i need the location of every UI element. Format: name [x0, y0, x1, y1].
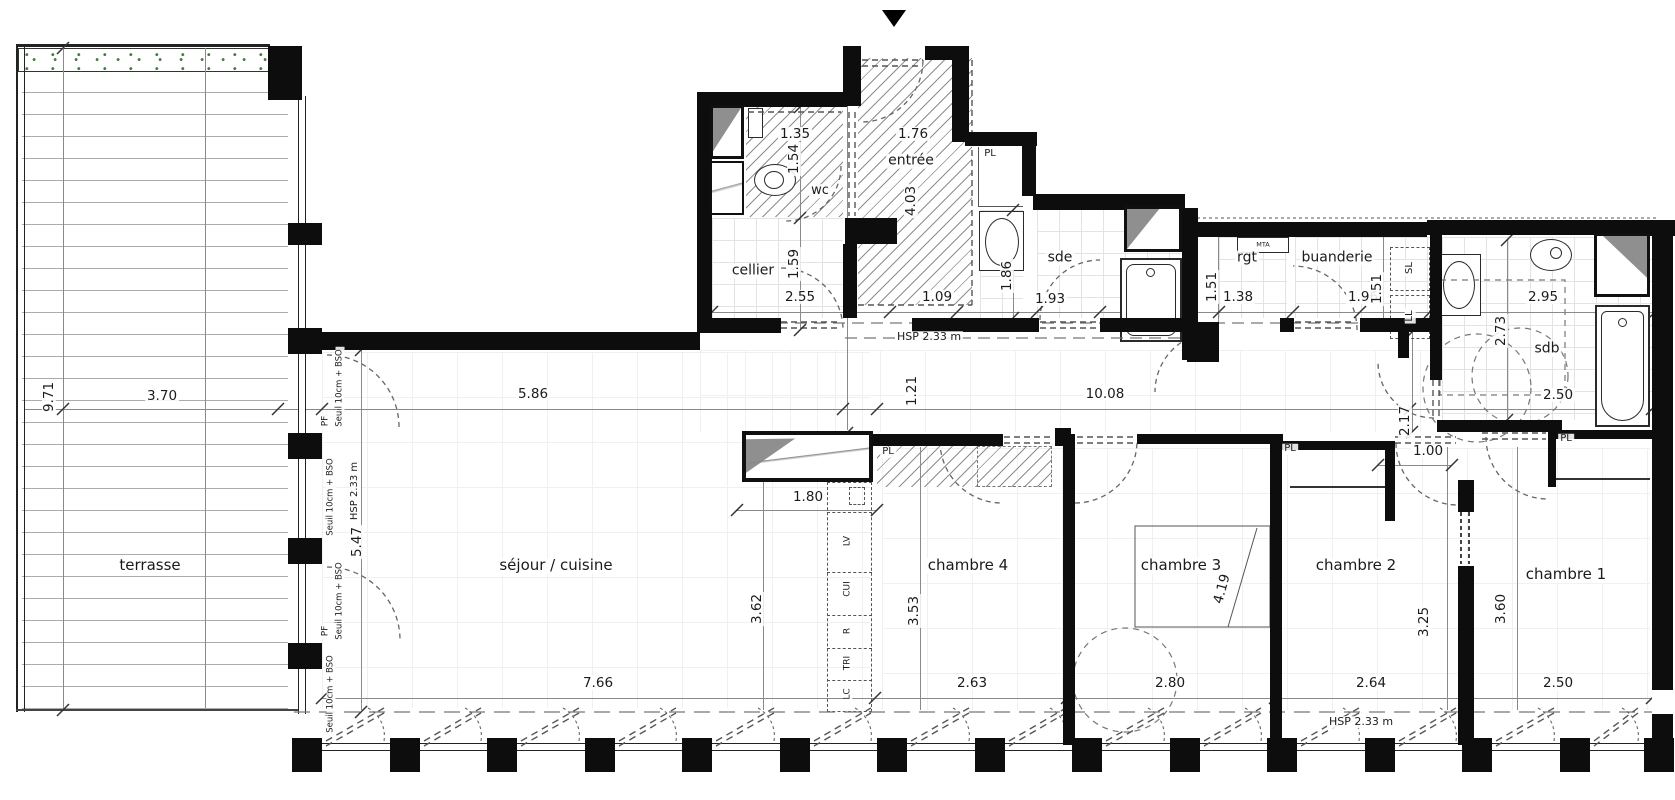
dimension-label: 3.25 [1417, 605, 1431, 639]
dimension-label: 1.21 [905, 374, 919, 408]
dimension-tick [871, 504, 883, 516]
facade-post [1365, 738, 1395, 772]
window-opening-arc [465, 708, 481, 741]
dimension-label: 1.86 [1000, 259, 1014, 293]
kitchen-zone-label-lave-vaisselle: LV [843, 534, 852, 548]
annotation-label-seuil-2: Seuil 10cm + BSO [327, 456, 336, 538]
dimension-tick [1031, 306, 1043, 318]
window-sde [1124, 206, 1182, 252]
room-label-chambre-2: chambre 2 [1314, 558, 1398, 574]
window-opening-diagonal [424, 713, 481, 746]
wall [1360, 318, 1432, 332]
facade-post [487, 738, 517, 772]
dimension-tick [1094, 306, 1106, 318]
facade-post [1170, 738, 1200, 772]
wall [268, 46, 302, 100]
dimension-tick [794, 324, 806, 336]
facade-post [1267, 738, 1297, 772]
window-opening-diagonal [1204, 708, 1261, 741]
window-opening-arc [1440, 708, 1456, 741]
dimension-tick [869, 692, 881, 704]
window-wc [710, 105, 744, 159]
dimension-tick [837, 403, 849, 415]
dimension-label: 1.54 [787, 142, 801, 176]
window-opening-diagonal [619, 708, 676, 741]
window-opening-arc [1538, 708, 1554, 741]
closet-label-pl-couloir: PL [880, 447, 896, 458]
window-sill-triangle [1127, 209, 1179, 249]
dimension-tick [871, 403, 883, 415]
facade-post [1072, 738, 1102, 772]
closet-label-pl-entree: PL [982, 149, 998, 160]
dimension-label: 7.66 [581, 676, 615, 690]
window-opening-diagonal [1204, 713, 1261, 746]
room-label-wc: wc [809, 184, 831, 198]
wall [1022, 146, 1036, 196]
window-opening-arc [660, 708, 676, 741]
facade-post [780, 738, 810, 772]
dimension-label: 1.76 [896, 127, 930, 141]
window-opening-diagonal [1594, 708, 1638, 741]
wall [843, 244, 857, 318]
annotation-label-pf-2: PF [321, 624, 330, 639]
facade-post [390, 738, 420, 772]
dimension-tick [1287, 306, 1299, 318]
room-label-cellier: cellier [730, 264, 776, 279]
room-label-rgt: rgt [1235, 251, 1259, 266]
wall [1280, 318, 1294, 332]
dimension-label: 2.50 [1541, 388, 1575, 402]
closet-label-pl-chambre1: PL [1558, 434, 1574, 445]
wall [300, 332, 700, 350]
wall [1190, 222, 1427, 237]
wall [952, 46, 969, 142]
appliance-label-seche-linge: SL [1405, 260, 1416, 276]
window-sill-triangle [1597, 236, 1647, 294]
wall [1437, 420, 1562, 432]
facade-post [585, 738, 615, 772]
dimension-tick [57, 42, 69, 54]
window-opening-diagonal [1106, 713, 1164, 746]
dimension-tick [884, 306, 896, 318]
floor-plan-canvas: terrasseséjour / cuisinechambre 4chambre… [0, 0, 1675, 800]
dimension-label: 5.47 [350, 525, 364, 559]
dimension-label: 3.60 [1494, 592, 1508, 626]
window-opening-arc [1245, 708, 1261, 741]
window-opening-diagonal [716, 713, 774, 746]
wall [965, 132, 1037, 146]
entry-step-block [845, 218, 897, 244]
dimension-label: 5.86 [516, 387, 550, 401]
window-opening-diagonal [911, 713, 969, 746]
window-cellier [710, 161, 744, 215]
wall [1270, 434, 1282, 745]
dimension-tick [731, 504, 743, 516]
room-label-sdb: sdb [1532, 342, 1561, 357]
wall [1652, 222, 1673, 690]
wall [843, 46, 861, 106]
dimension-label: 2.63 [955, 676, 989, 690]
dimension-label: 1.35 [778, 127, 812, 141]
window-opening-arc [1622, 708, 1638, 741]
closet-label-pl-chambre2: PL [1282, 444, 1298, 455]
window-sill-triangle [712, 163, 742, 213]
window-opening-arc [368, 708, 384, 741]
dimension-label: 1.80 [791, 490, 825, 504]
dimension-label: 1.00 [1411, 444, 1445, 458]
wall [1458, 480, 1474, 512]
wall [1458, 566, 1474, 745]
window-opening-diagonal [1399, 708, 1456, 741]
wall [288, 328, 322, 354]
window-opening-arc [563, 708, 579, 741]
plan-linework [0, 0, 1675, 800]
room-label-sde: sde [1046, 251, 1075, 266]
room-label-chambre-1: chambre 1 [1524, 567, 1608, 583]
wall [1187, 322, 1219, 362]
room-label-chambre-3: chambre 3 [1139, 558, 1223, 574]
dimension-label: 2.73 [1494, 314, 1508, 348]
dimension-label: 9.71 [42, 380, 56, 414]
room-label-buanderie: buanderie [1300, 251, 1375, 266]
dimension-label: 1.51 [1370, 272, 1384, 306]
wall [288, 538, 322, 564]
dimension-label: 1.38 [1221, 290, 1255, 304]
annotation-label-hsp-bottom: HSP 2.33 m [1327, 716, 1395, 728]
dimension-label: 1.09 [920, 290, 954, 304]
dimension-label: 2.64 [1354, 676, 1388, 690]
pocket-door-dashes [1461, 512, 1469, 564]
window-sill-line [746, 435, 869, 478]
dimension-label: 2.80 [1153, 676, 1187, 690]
window-opening-diagonal [424, 708, 481, 741]
facade-post [682, 738, 712, 772]
window-cuisine [742, 431, 873, 482]
dimension-tick [951, 306, 963, 318]
dimension-tick [272, 403, 284, 415]
dimension-label: 1.51 [1205, 270, 1219, 304]
dimension-label: 2.50 [1541, 676, 1575, 690]
window-opening-diagonal [1009, 708, 1066, 741]
window-opening-diagonal [1594, 713, 1638, 746]
dimension-tick [1446, 459, 1458, 471]
window-opening-arc [953, 708, 969, 741]
facade-post [292, 738, 322, 772]
wall [697, 318, 781, 333]
dimension-label: 2.95 [1526, 290, 1560, 304]
dimension-label: 1.59 [787, 247, 801, 281]
dimension-label: 3.70 [145, 389, 179, 403]
dimension-label: 2.55 [783, 290, 817, 304]
kitchen-zone-label-refrigerateur: R [843, 626, 852, 636]
facade-post [1462, 738, 1492, 772]
dimension-tick [57, 704, 69, 716]
wall [1430, 336, 1442, 380]
wall [1430, 222, 1442, 336]
chambre3-annotation-box [1135, 526, 1270, 627]
wall [1398, 330, 1409, 358]
window-opening-arc [758, 708, 774, 741]
dimension-label: 3.53 [907, 594, 921, 628]
window-opening-diagonal [619, 713, 676, 746]
window-opening-diagonal [521, 713, 579, 746]
wall [288, 433, 322, 459]
dimension-tick [57, 403, 69, 415]
wall [1385, 441, 1395, 521]
window-opening-diagonal [814, 708, 871, 741]
dimension-tick [1213, 306, 1225, 318]
annotation-label-hsp-west: HSP 2.33 m [350, 460, 361, 522]
dimension-tick [1007, 204, 1019, 216]
window-sill-triangle [713, 108, 741, 156]
right-wall-window-gap [1652, 690, 1673, 714]
window-opening-diagonal [1399, 713, 1456, 746]
wall [288, 223, 322, 245]
kitchen-zone-label-cuisson: CUI [843, 579, 852, 599]
appliance-label-lave-linge: LL [1405, 308, 1416, 323]
dimension-tick [1354, 306, 1366, 318]
wall [873, 434, 1003, 446]
annotation-label-seuil-4: Seuil 10cm + BSO [327, 653, 336, 735]
annotation-label-hsp-corridor: HSP 2.33 m [895, 331, 963, 343]
door-swing-arcs [327, 60, 1548, 640]
room-label-sejour-cuisine: séjour / cuisine [497, 558, 614, 574]
room-label-terrasse: terrasse [117, 558, 182, 574]
wall [288, 643, 322, 669]
window-opening-arc [855, 708, 871, 741]
wall [1282, 441, 1392, 450]
kitchen-zone-label-tri: TRI [843, 654, 852, 672]
annotation-label-seuil-1: Seuil 10cm + BSO [336, 347, 345, 429]
kitchen-zone-label-lave-coude: LC [843, 686, 852, 701]
annotation-label-pf-1: PF [321, 414, 330, 429]
window-opening-arc [1148, 708, 1164, 741]
dimension-label: 4.03 [904, 184, 918, 218]
wall [1063, 434, 1075, 745]
wall [1137, 434, 1283, 444]
dimension-tick [1372, 459, 1384, 471]
window-opening-diagonal [1009, 713, 1066, 746]
window-opening-diagonal [1496, 713, 1554, 746]
facade-post [1560, 738, 1590, 772]
wall [1100, 318, 1188, 332]
window-opening-diagonal [814, 713, 871, 746]
dimension-tick [1501, 234, 1513, 246]
facade-post [975, 738, 1005, 772]
entrance-arrow-icon [882, 10, 906, 27]
room-label-entree: entrée [886, 154, 936, 169]
dimension-label: 1.93 [1033, 292, 1067, 306]
generated-decor [57, 42, 1661, 746]
closet-label-mta: MTA [1254, 242, 1272, 249]
window-sdb [1594, 233, 1650, 297]
facade-post [1644, 738, 1674, 772]
annotation-label-seuil-3: Seuil 10cm + BSO [336, 560, 345, 642]
dimension-label: 10.08 [1084, 387, 1127, 401]
dimension-label: 3.62 [750, 592, 764, 626]
room-label-chambre-4: chambre 4 [926, 558, 1010, 574]
dimension-label: 2.17 [1398, 404, 1412, 438]
facade-post [877, 738, 907, 772]
